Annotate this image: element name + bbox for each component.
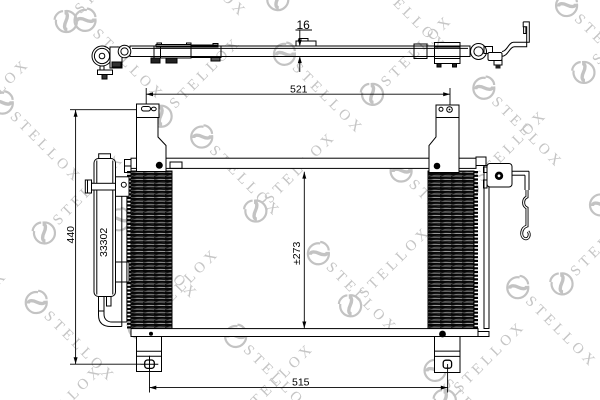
- svg-text:521: 521: [290, 84, 308, 96]
- svg-text:33302: 33302: [98, 228, 110, 257]
- svg-text:515: 515: [292, 377, 310, 389]
- svg-text:±273: ±273: [291, 242, 303, 265]
- svg-text:16: 16: [297, 18, 311, 32]
- svg-text:440: 440: [65, 226, 77, 244]
